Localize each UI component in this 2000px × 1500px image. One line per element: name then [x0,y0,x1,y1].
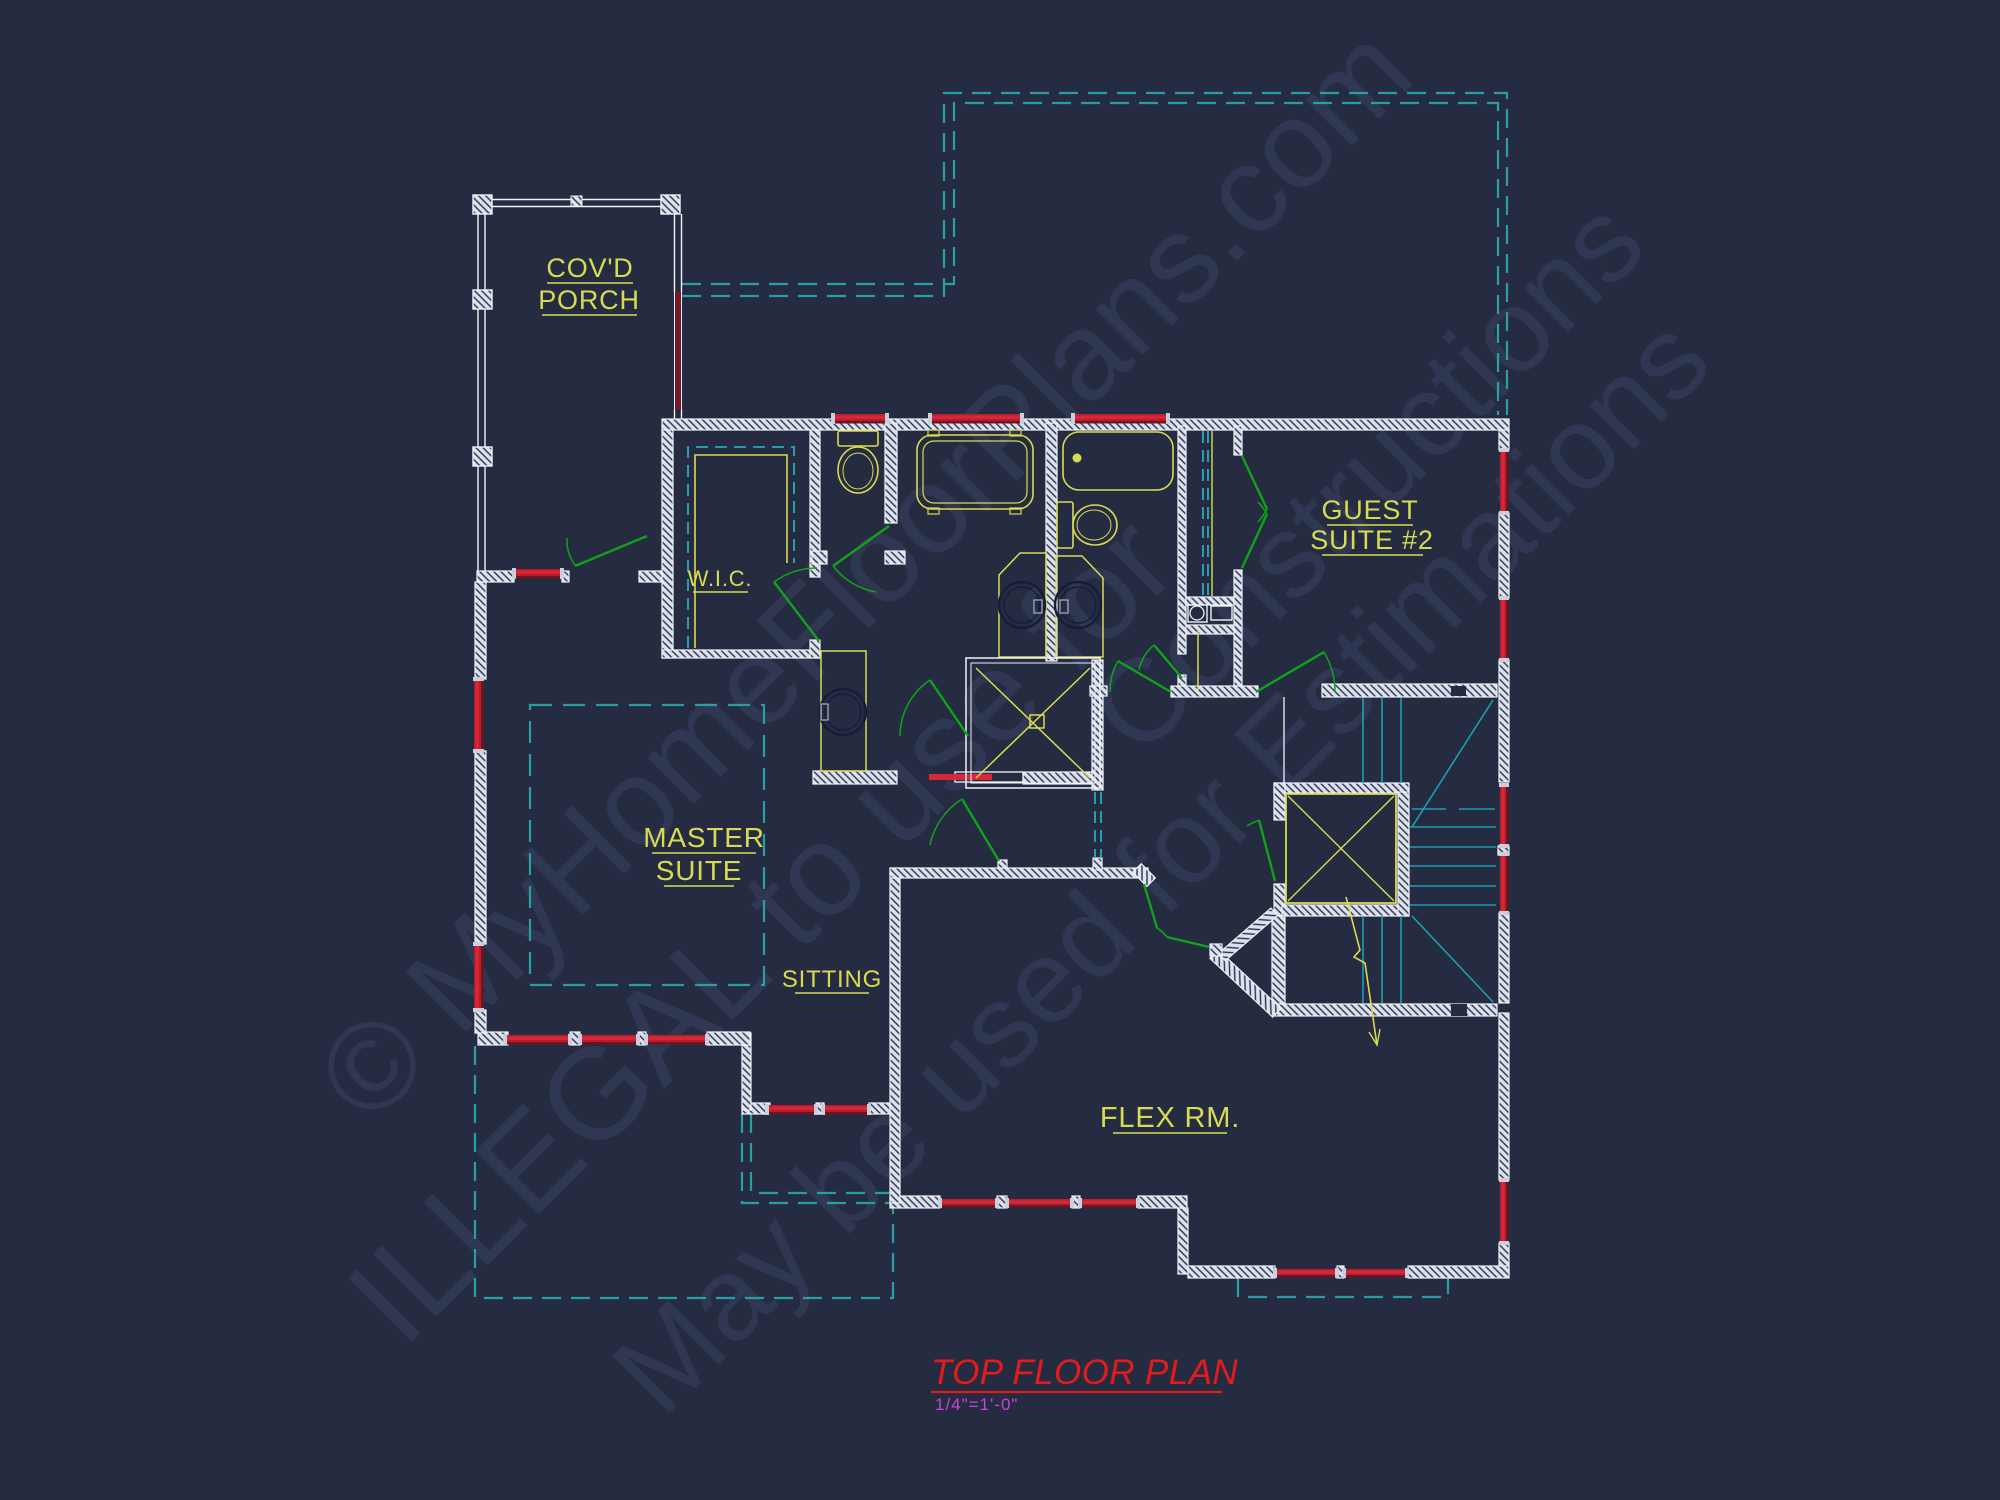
svg-text:SUITE: SUITE [656,855,742,886]
svg-text:1/4"=1'-0": 1/4"=1'-0" [935,1395,1018,1414]
svg-text:FLEX RM.: FLEX RM. [1100,1102,1240,1134]
svg-text:SUITE #2: SUITE #2 [1310,525,1433,555]
svg-text:COV'D: COV'D [546,253,633,283]
svg-text:GUEST: GUEST [1321,495,1418,525]
svg-text:TOP FLOOR PLAN: TOP FLOOR PLAN [931,1353,1238,1392]
svg-text:SITTING: SITTING [782,966,882,993]
svg-text:PORCH: PORCH [538,285,640,315]
svg-text:W.I.C.: W.I.C. [688,566,753,591]
svg-text:MASTER: MASTER [643,822,764,853]
